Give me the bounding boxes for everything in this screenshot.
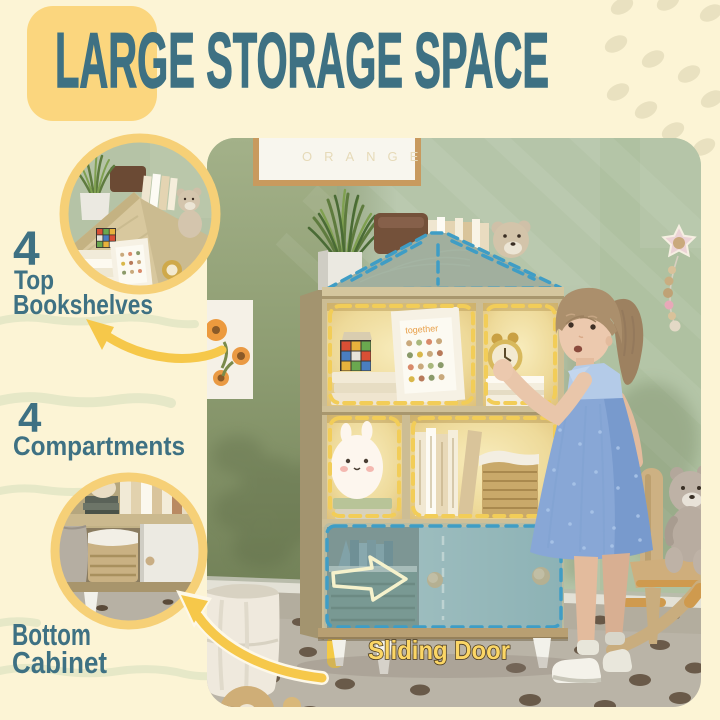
svg-text:Compartments: Compartments — [13, 431, 185, 461]
svg-text:Sliding Door: Sliding Door — [368, 635, 510, 665]
svg-text:Cabinet: Cabinet — [12, 645, 107, 680]
svg-text:LARGE STORAGE SPACE: LARGE STORAGE SPACE — [55, 16, 549, 104]
svg-text:Bookshelves: Bookshelves — [13, 289, 153, 320]
svg-text:ORANGE: ORANGE — [302, 149, 430, 164]
